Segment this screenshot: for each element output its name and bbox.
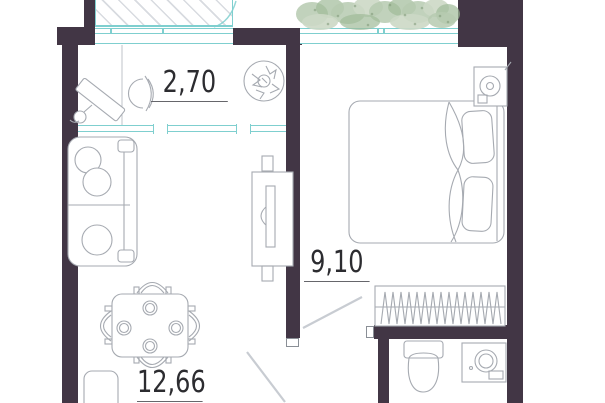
- balcony-door-swing: [214, 1, 236, 27]
- foliage: [296, 0, 460, 30]
- room-area-label-bedroom: 9,10: [304, 248, 370, 282]
- room-area-label-loggia: 2,70: [151, 68, 228, 102]
- desk-chair: [129, 76, 154, 111]
- wardrobe: [375, 286, 505, 326]
- potted-plant: [244, 61, 284, 101]
- desk: [70, 78, 125, 123]
- toilet: [404, 341, 443, 392]
- furniture-layer: [0, 0, 605, 403]
- bedroom-door-swing: [303, 297, 362, 328]
- hall-door-swing: [247, 352, 285, 402]
- room-area-label-living: 12,66: [137, 368, 203, 402]
- tv-stand: [252, 156, 293, 281]
- double-bed: [349, 101, 504, 243]
- washing-machine: [462, 343, 506, 382]
- floor-plan: 2,70 9,10 12,66: [0, 0, 605, 403]
- sofa: [68, 137, 137, 266]
- dining-table: [101, 283, 200, 368]
- water-heater: [474, 62, 511, 106]
- cut-furniture: [84, 371, 118, 403]
